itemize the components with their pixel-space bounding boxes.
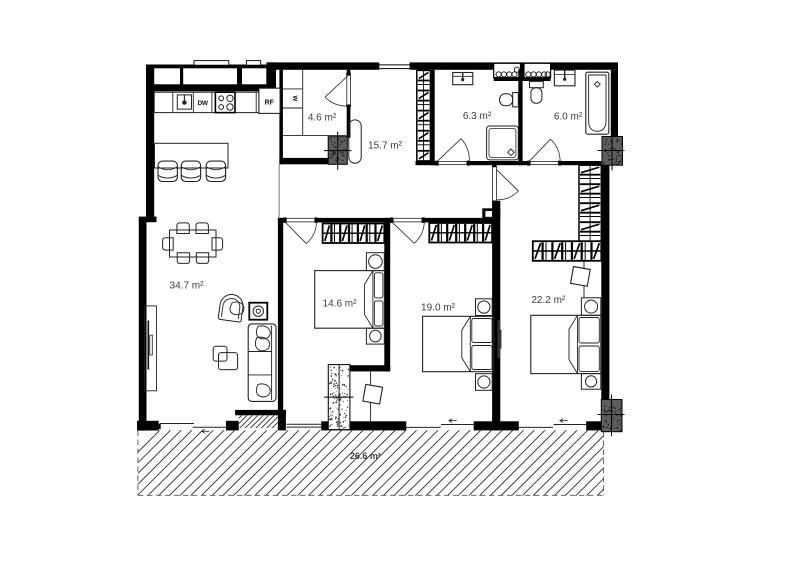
svg-text:DW: DW: [197, 100, 208, 107]
svg-text:14.6 m²: 14.6 m²: [323, 299, 358, 310]
svg-text:15.7 m²: 15.7 m²: [368, 140, 403, 151]
svg-text:6.0 m²: 6.0 m²: [554, 112, 583, 123]
svg-text:19.0 m²: 19.0 m²: [421, 303, 456, 314]
svg-text:22.2 m²: 22.2 m²: [531, 295, 566, 306]
svg-text:4.6 m²: 4.6 m²: [308, 113, 337, 124]
svg-text:W: W: [291, 95, 297, 101]
svg-text:26.6 m²: 26.6 m²: [350, 451, 381, 461]
svg-text:34.7 m²: 34.7 m²: [170, 280, 205, 291]
svg-text:6.3 m²: 6.3 m²: [463, 111, 492, 122]
svg-text:RF: RF: [265, 100, 275, 107]
